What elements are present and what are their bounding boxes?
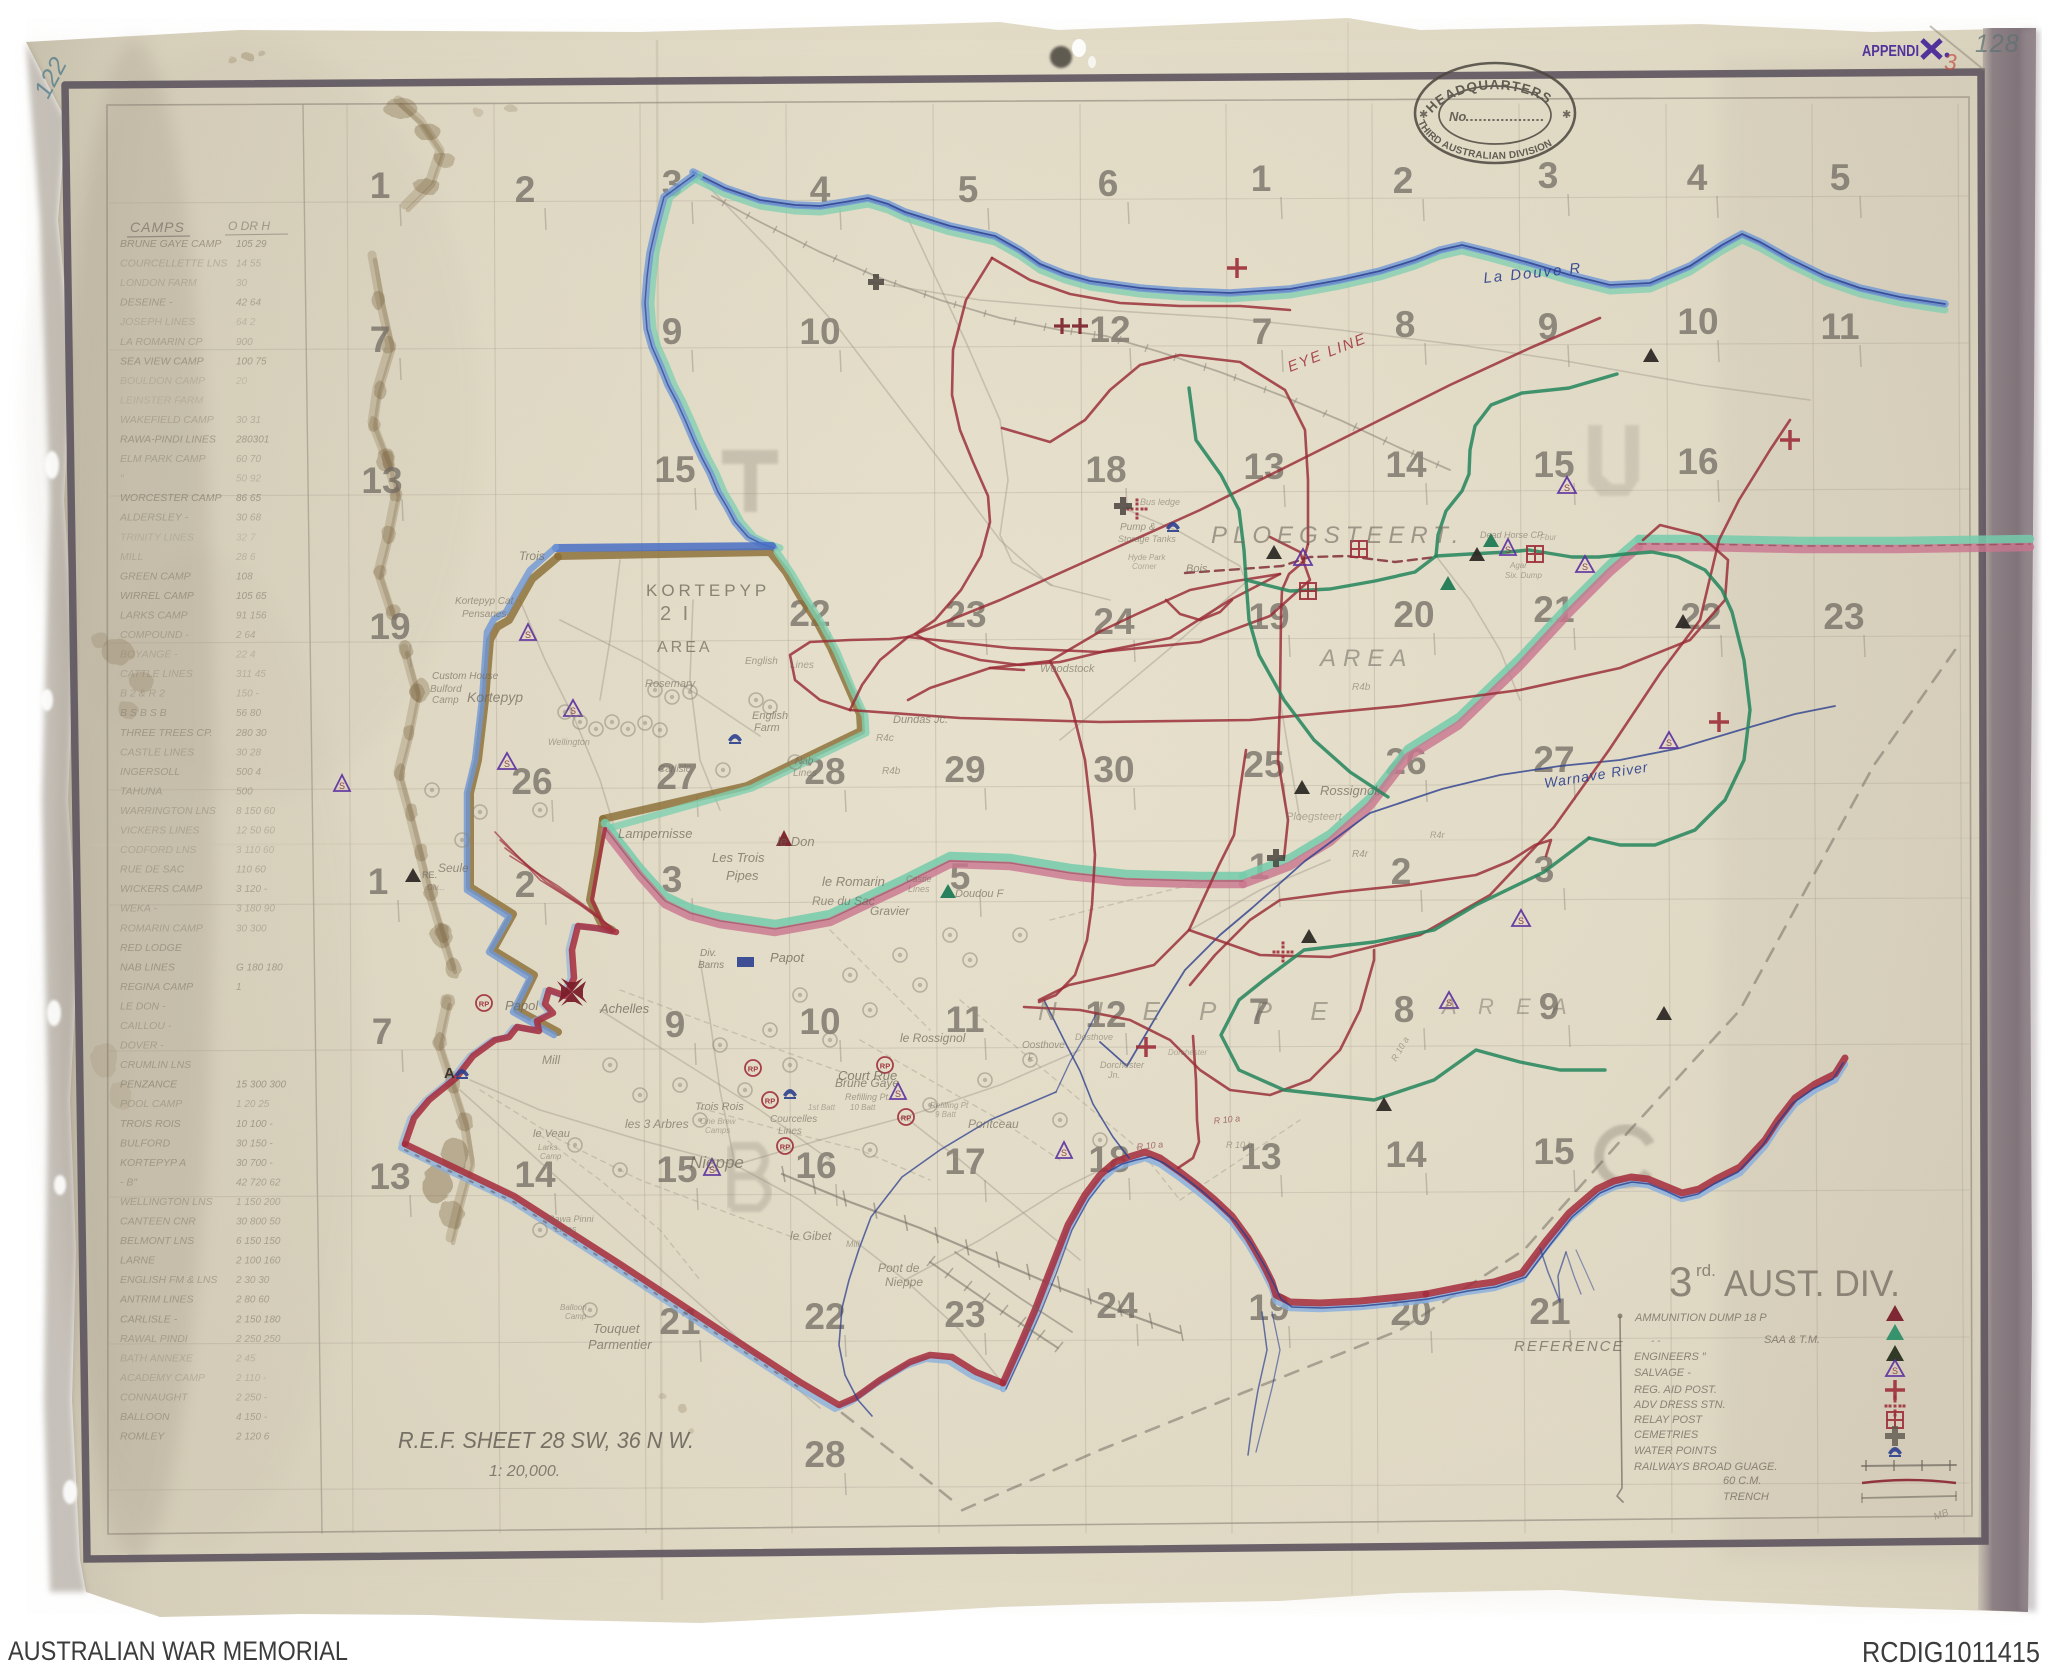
svg-text:1: 1 (236, 982, 242, 993)
svg-text:BALLOON: BALLOON (120, 1411, 170, 1423)
svg-text:JOSEPH LINES: JOSEPH LINES (119, 316, 195, 328)
svg-text:91 156: 91 156 (236, 610, 267, 621)
svg-text:21: 21 (1529, 1291, 1570, 1332)
svg-text:3: 3 (1534, 849, 1555, 890)
svg-text:BELMONT LNS: BELMONT LNS (120, 1235, 194, 1247)
svg-text:S: S (1061, 1148, 1067, 1158)
svg-text:14: 14 (1385, 1134, 1427, 1175)
svg-text:Larks: Larks (538, 1143, 558, 1152)
svg-text:10 100 -: 10 100 - (236, 1119, 273, 1130)
svg-text:LARKS CAMP: LARKS CAMP (120, 609, 188, 621)
svg-text:30 68: 30 68 (236, 513, 261, 524)
svg-text:Papot: Papot (770, 950, 805, 965)
svg-text:Papol: Papol (505, 998, 539, 1013)
svg-text:8: 8 (1394, 989, 1415, 1030)
svg-text:1 20 25: 1 20 25 (236, 1099, 270, 1110)
svg-text:9 Batt: 9 Batt (935, 1110, 957, 1119)
svg-text:RAWAL PINDI: RAWAL PINDI (120, 1333, 188, 1345)
svg-text:TAHUNA: TAHUNA (120, 785, 162, 797)
svg-text:280301: 280301 (235, 435, 269, 446)
svg-text:WATER POINTS: WATER POINTS (1634, 1445, 1717, 1457)
svg-text:RAWA-PINDI LINES: RAWA-PINDI LINES (120, 434, 216, 446)
svg-text:WORCESTER CAMP: WORCESTER CAMP (120, 492, 222, 504)
svg-text:Six. Dump: Six. Dump (1505, 571, 1542, 580)
svg-text:13: 13 (369, 1156, 410, 1197)
svg-text:30 800 50: 30 800 50 (236, 1217, 281, 1228)
svg-text:le Veau: le Veau (533, 1128, 570, 1140)
svg-text:9: 9 (662, 311, 683, 352)
svg-text:2 110 -: 2 110 - (235, 1373, 267, 1384)
svg-text:ANTRIM LINES: ANTRIM LINES (119, 1294, 194, 1306)
svg-text:311 45: 311 45 (236, 669, 266, 680)
svg-text:PENZANCE: PENZANCE (120, 1079, 178, 1091)
svg-text:10: 10 (1677, 301, 1718, 342)
svg-text:CASTLE LINES: CASTLE LINES (120, 746, 194, 758)
svg-text:Hyde Park: Hyde Park (1128, 553, 1166, 562)
svg-text:150 -: 150 - (236, 689, 259, 700)
svg-text:S: S (1666, 738, 1672, 748)
svg-text:1: 20,000.: 1: 20,000. (489, 1463, 560, 1480)
svg-text:S: S (1505, 545, 1511, 555)
svg-text:128: 128 (1975, 30, 2020, 58)
svg-text:KORTEPYP: KORTEPYP (646, 581, 770, 600)
svg-text:60 70: 60 70 (236, 454, 261, 465)
svg-text:3 120 -: 3 120 - (236, 884, 268, 895)
svg-text:2: 2 (1393, 160, 1414, 201)
svg-text:ENGLISH FM & LNS: ENGLISH FM & LNS (120, 1274, 217, 1286)
svg-text:Lines: Lines (908, 884, 930, 894)
svg-text:RP: RP (748, 1065, 758, 1074)
svg-text:RED LODGE: RED LODGE (120, 942, 183, 954)
svg-text:Mill: Mill (846, 1239, 860, 1249)
svg-text:A: A (444, 1065, 455, 1082)
svg-text:100 75: 100 75 (236, 356, 267, 367)
svg-text:30 300: 30 300 (236, 923, 267, 934)
svg-text:105 65: 105 65 (236, 591, 267, 602)
svg-text:Lines: Lines (555, 1224, 577, 1234)
svg-text:ADV DRESS STN.: ADV DRESS STN. (1633, 1399, 1726, 1411)
svg-text:les 3 Arbres: les 3 Arbres (625, 1117, 689, 1131)
svg-text:Lines: Lines (778, 1126, 802, 1137)
svg-text:Kortepyp Cat: Kortepyp Cat (455, 596, 515, 607)
svg-text:ACADEMY CAMP: ACADEMY CAMP (119, 1372, 205, 1384)
svg-text:5: 5 (1830, 157, 1851, 198)
svg-text:S: S (1582, 562, 1588, 572)
svg-text:Div...: Div... (427, 883, 445, 892)
svg-text:S: S (1564, 483, 1570, 493)
svg-text:AREA: AREA (657, 639, 713, 656)
svg-text:7: 7 (372, 1011, 393, 1052)
svg-text:15: 15 (1533, 1131, 1574, 1172)
svg-text:Nieppe: Nieppe (885, 1275, 923, 1289)
svg-text:2 30 30: 2 30 30 (235, 1275, 270, 1286)
svg-text:CANTEEN CNR: CANTEEN CNR (120, 1216, 196, 1228)
svg-text:3 110 60: 3 110 60 (236, 845, 275, 856)
svg-text:F: F (1028, 1052, 1034, 1062)
svg-text:Jn.: Jn. (1107, 1070, 1120, 1080)
svg-text:12: 12 (1089, 309, 1130, 350)
svg-text:A R E A: A R E A (1440, 994, 1575, 1019)
svg-text:R4c: R4c (876, 733, 894, 744)
svg-text:1st Batt: 1st Batt (808, 1103, 836, 1112)
svg-text:RP: RP (901, 1114, 911, 1123)
svg-text:RE.: RE. (422, 870, 437, 880)
svg-text:WARRINGTON LNS: WARRINGTON LNS (120, 805, 216, 817)
svg-text:15 300 300: 15 300 300 (236, 1080, 286, 1091)
svg-text:MILL: MILL (120, 551, 144, 563)
svg-text:30 31: 30 31 (236, 415, 261, 426)
svg-text:WELLINGTON LNS: WELLINGTON LNS (120, 1196, 213, 1208)
svg-text:Dorchester: Dorchester (1100, 1060, 1145, 1070)
svg-text:COURCELLETTE LNS: COURCELLETTE LNS (120, 258, 227, 270)
svg-text:S: S (1892, 1366, 1898, 1376)
svg-text:30 700 -: 30 700 - (236, 1158, 273, 1169)
svg-text:RP: RP (765, 1097, 775, 1106)
svg-text:S: S (339, 781, 345, 791)
svg-text:Mill: Mill (542, 1053, 560, 1067)
svg-text:English: English (752, 710, 788, 722)
svg-text:23: 23 (1823, 596, 1864, 637)
svg-text:Wellington: Wellington (548, 737, 590, 747)
svg-text:DOVER -: DOVER - (120, 1040, 164, 1052)
svg-text:Trois Rois: Trois Rois (695, 1101, 744, 1113)
svg-text:30: 30 (236, 278, 248, 289)
svg-text:2 120 6: 2 120 6 (235, 1432, 270, 1443)
svg-text:1 150 200: 1 150 200 (236, 1197, 281, 1208)
svg-text:Refilling Pt.: Refilling Pt. (845, 1092, 891, 1102)
svg-text:G 180 180: G 180 180 (236, 962, 283, 973)
svg-text:4 150 -: 4 150 - (236, 1412, 268, 1423)
svg-text:500: 500 (236, 786, 253, 797)
svg-text:WICKERS CAMP: WICKERS CAMP (120, 883, 202, 895)
svg-text:APPENDI: APPENDI (1862, 43, 1919, 60)
svg-text:R 10 b: R 10 b (1226, 1140, 1253, 1150)
svg-text:3: 3 (1538, 155, 1559, 196)
svg-text:✱: ✱ (1419, 109, 1428, 121)
svg-text:19: 19 (369, 606, 410, 647)
svg-text:REGINA CAMP: REGINA CAMP (120, 981, 193, 993)
svg-text:R4r: R4r (1352, 849, 1369, 860)
svg-text:Rossignol.: Rossignol. (1320, 783, 1381, 798)
svg-text:CODFORD LNS: CODFORD LNS (120, 844, 196, 856)
svg-text:Bus ledge: Bus ledge (1140, 497, 1180, 507)
svg-text:2 I: 2 I (660, 603, 691, 625)
svg-text:LONDON FARM: LONDON FARM (120, 277, 197, 289)
svg-text:30 28: 30 28 (236, 747, 261, 758)
svg-text:ELM PARK CAMP: ELM PARK CAMP (120, 453, 206, 465)
svg-text:10: 10 (799, 311, 840, 352)
svg-text:THREE TREES CP.: THREE TREES CP. (120, 727, 213, 739)
svg-text:RP: RP (780, 1143, 790, 1152)
svg-text:Nieppe: Nieppe (690, 1153, 744, 1172)
svg-text:42 64: 42 64 (236, 298, 261, 309)
svg-text:1: 1 (368, 861, 389, 902)
svg-text:Pontceau: Pontceau (968, 1117, 1019, 1131)
svg-text:AUSTRALIAN WAR MEMORIAL: AUSTRALIAN WAR MEMORIAL (8, 1636, 348, 1666)
svg-text:SEA VIEW CAMP: SEA VIEW CAMP (120, 355, 204, 367)
svg-text:O DR H: O DR H (228, 219, 270, 233)
svg-text:- -: - - (1651, 1336, 1661, 1347)
svg-text:Lines: Lines (790, 660, 814, 671)
svg-text:10: 10 (799, 1001, 840, 1042)
svg-text:Woodstock: Woodstock (1040, 663, 1095, 675)
svg-text:64 2: 64 2 (236, 317, 256, 328)
svg-text:2 64: 2 64 (235, 630, 256, 641)
svg-text:NAB LINES: NAB LINES (120, 961, 175, 973)
svg-text:TROIS ROIS: TROIS ROIS (120, 1118, 181, 1130)
svg-text:18: 18 (1085, 449, 1126, 490)
svg-text:ALDERSLEY -: ALDERSLEY - (119, 512, 189, 524)
svg-text:RCDIG1011415: RCDIG1011415 (1862, 1637, 2040, 1669)
svg-text:26: 26 (511, 761, 552, 802)
svg-text:CATTLE LINES: CATTLE LINES (120, 668, 193, 680)
svg-text:Dorchester: Dorchester (1168, 1048, 1207, 1057)
svg-text:28: 28 (804, 1434, 845, 1475)
svg-text:R.E.F. SHEET 28 SW, 36 N W.: R.E.F. SHEET 28 SW, 36 N W. (398, 1427, 694, 1453)
svg-text:3: 3 (1669, 1258, 1692, 1305)
svg-text:BULFORD: BULFORD (120, 1137, 171, 1149)
svg-text:23: 23 (944, 1294, 985, 1335)
svg-text:BOYANGE -: BOYANGE - (120, 649, 178, 661)
svg-text:280 30: 280 30 (235, 728, 267, 739)
svg-text:30: 30 (1093, 749, 1134, 790)
svg-text:Barns: Barns (698, 960, 724, 971)
svg-text:Bois: Bois (1186, 563, 1208, 575)
svg-text:LEINSTER FARM: LEINSTER FARM (120, 394, 203, 406)
svg-text:SALVAGE -: SALVAGE - (1634, 1367, 1691, 1379)
svg-text:Div.: Div. (700, 948, 716, 959)
svg-text:BRUNE GAYE CAMP: BRUNE GAYE CAMP (120, 238, 221, 250)
svg-text:REFERENCE: REFERENCE (1514, 1338, 1625, 1355)
svg-text:4: 4 (1687, 157, 1708, 198)
svg-text:CAMPS: CAMPS (130, 219, 185, 235)
svg-text:LE DON -: LE DON - (120, 1000, 166, 1012)
svg-text:105 29: 105 29 (236, 239, 267, 250)
svg-text:12 50 60: 12 50 60 (236, 826, 275, 837)
svg-text:60 C.M.: 60 C.M. (1723, 1475, 1762, 1487)
svg-text:Dundas Jc.: Dundas Jc. (893, 714, 948, 726)
svg-text:ROMARIN CAMP: ROMARIN CAMP (120, 922, 203, 934)
svg-text:86 65: 86 65 (236, 493, 261, 504)
svg-text:Lampernisse: Lampernisse (618, 826, 692, 841)
svg-text:BOULDON CAMP: BOULDON CAMP (120, 375, 205, 387)
svg-text:16: 16 (795, 1145, 836, 1186)
svg-text:Trois: Trois (519, 549, 545, 563)
svg-text:7: 7 (1252, 311, 1273, 352)
svg-text:LARNE: LARNE (120, 1255, 156, 1267)
svg-text:CEMETRIES: CEMETRIES (1634, 1429, 1699, 1441)
svg-text:29: 29 (944, 749, 985, 790)
svg-text:1: 1 (1251, 158, 1272, 199)
svg-text:Rosemary: Rosemary (645, 678, 697, 690)
svg-text:2 45: 2 45 (235, 1353, 256, 1364)
svg-text:56 80: 56 80 (236, 708, 261, 719)
svg-text:AUST. DIV.: AUST. DIV. (1724, 1263, 1900, 1304)
svg-text:13: 13 (1243, 446, 1284, 487)
svg-text:INGERSOLL: INGERSOLL (120, 766, 180, 778)
svg-text:2 250 250: 2 250 250 (235, 1334, 281, 1345)
svg-text:S: S (525, 630, 531, 640)
svg-text:Nab: Nab (795, 756, 814, 767)
svg-text:7: 7 (370, 319, 391, 360)
svg-text:900: 900 (236, 337, 253, 348)
svg-text:WIRREL CAMP: WIRREL CAMP (120, 590, 194, 602)
svg-text:Agar: Agar (1509, 561, 1527, 570)
svg-text:le Romarin: le Romarin (822, 874, 885, 889)
svg-text:8 150 60: 8 150 60 (236, 806, 275, 817)
svg-text:20: 20 (1393, 594, 1434, 635)
svg-text:32 7: 32 7 (236, 532, 256, 543)
svg-text:RP: RP (479, 1000, 489, 1009)
svg-text:Carlisle: Carlisle (658, 764, 692, 775)
svg-text:13: 13 (361, 460, 402, 501)
svg-text:Ploegsteert: Ploegsteert (1286, 811, 1343, 823)
svg-text:24: 24 (1093, 601, 1135, 642)
svg-text:3: 3 (1944, 49, 1957, 75)
svg-text:Camps: Camps (705, 1126, 730, 1135)
svg-text:Refilling Pt: Refilling Pt (930, 1101, 969, 1110)
svg-text:Custom House: Custom House (432, 671, 499, 682)
svg-text:CONNAUGHT: CONNAUGHT (120, 1391, 189, 1403)
svg-text:S: S (895, 1089, 901, 1099)
svg-text:RELAY POST: RELAY POST (1634, 1414, 1703, 1426)
svg-text:Dosthove: Dosthove (1075, 1032, 1113, 1042)
svg-text:SAA & T.M.: SAA & T.M. (1764, 1334, 1820, 1346)
svg-text:2 150 180: 2 150 180 (235, 1314, 281, 1325)
svg-text:✱: ✱ (1562, 109, 1571, 121)
svg-text:B 2 & R 2: B 2 & R 2 (120, 688, 165, 700)
svg-text:Pipes: Pipes (726, 868, 759, 883)
svg-text:Kortepyp: Kortepyp (467, 689, 523, 705)
svg-text:RUE DE SAC: RUE DE SAC (120, 864, 185, 876)
svg-text:Dead Horse CP: Dead Horse CP (1480, 530, 1543, 540)
svg-text:5: 5 (958, 169, 979, 210)
svg-text:Storage Tanks: Storage Tanks (1118, 534, 1176, 544)
svg-text:110 60: 110 60 (236, 865, 266, 876)
svg-text:WAKEFIELD CAMP: WAKEFIELD CAMP (120, 414, 214, 426)
svg-text:16: 16 (1677, 441, 1718, 482)
svg-text:DESEINE -: DESEINE - (120, 297, 173, 309)
svg-text:10 Batt: 10 Batt (850, 1103, 876, 1112)
svg-text:22 4: 22 4 (235, 650, 256, 661)
svg-text:LA ROMARIN CP: LA ROMARIN CP (120, 336, 202, 348)
svg-text:R4r: R4r (1430, 830, 1446, 840)
svg-text:One Brew: One Brew (700, 1117, 737, 1126)
svg-text:Fbur: Fbur (1540, 533, 1557, 542)
svg-text:TRINITY LINES: TRINITY LINES (120, 531, 194, 543)
svg-text:R4b: R4b (882, 766, 901, 777)
svg-text:rd.: rd. (1696, 1261, 1716, 1280)
svg-text:Castle: Castle (906, 874, 932, 884)
svg-text:le Gibet: le Gibet (790, 1229, 832, 1243)
svg-text:27: 27 (656, 756, 697, 797)
svg-text:3 180 90: 3 180 90 (236, 904, 275, 915)
svg-text:Corner: Corner (1132, 562, 1157, 571)
svg-text:Camp: Camp (565, 1312, 587, 1321)
svg-text:BATH ANNEXE: BATH ANNEXE (120, 1352, 194, 1364)
svg-text:500 4: 500 4 (236, 767, 261, 778)
svg-text:COMPOUND -: COMPOUND - (120, 629, 189, 641)
svg-text:Les Trois: Les Trois (712, 850, 765, 865)
svg-text:11: 11 (1820, 306, 1859, 347)
svg-text:REG. AID POST.: REG. AID POST. (1634, 1384, 1717, 1396)
svg-text:English: English (745, 656, 778, 667)
svg-text:15: 15 (654, 449, 695, 490)
svg-text:Balloon: Balloon (560, 1303, 587, 1312)
svg-text:2 80 60: 2 80 60 (235, 1295, 270, 1306)
svg-text:le Rossignol: le Rossignol (900, 1031, 966, 1045)
svg-text:ENGINEERS ″: ENGINEERS ″ (1634, 1351, 1707, 1363)
svg-text:Bulford: Bulford (430, 684, 462, 695)
svg-text:Camp: Camp (432, 695, 459, 706)
svg-text:POOL CAMP: POOL CAMP (120, 1098, 182, 1110)
svg-text:CAILLOU -: CAILLOU - (120, 1020, 172, 1032)
svg-text:Camp: Camp (540, 1152, 562, 1161)
svg-text:Parmentier: Parmentier (588, 1337, 652, 1352)
svg-text:6 150 150: 6 150 150 (236, 1236, 281, 1247)
svg-text:9: 9 (665, 1004, 686, 1045)
svg-text:- B″: - B″ (120, 1176, 138, 1188)
svg-text:1: 1 (370, 165, 391, 206)
svg-text:14 55: 14 55 (236, 259, 261, 270)
svg-text:VICKERS LINES: VICKERS LINES (120, 825, 199, 837)
svg-text:Seule: Seule (438, 861, 469, 875)
svg-text:42 720 62: 42 720 62 (236, 1177, 281, 1188)
svg-text:108: 108 (236, 571, 253, 582)
svg-text:Pump &: Pump & (1120, 522, 1156, 533)
svg-text:KORTEPYP A: KORTEPYP A (120, 1157, 186, 1169)
svg-text:Achelles: Achelles (599, 1001, 650, 1016)
svg-text:Lines: Lines (793, 768, 817, 779)
svg-text:30 150 -: 30 150 - (236, 1138, 273, 1149)
svg-text:AREA: AREA (1318, 645, 1413, 672)
svg-text:CARLISLE -: CARLISLE - (120, 1313, 178, 1325)
svg-text:WEKA -: WEKA - (120, 903, 157, 915)
svg-text:No: No (1449, 109, 1466, 124)
svg-text:Oosthove: Oosthove (1022, 1040, 1065, 1051)
svg-text:2 100 160: 2 100 160 (235, 1256, 281, 1267)
svg-text:Pensanes: Pensanes (462, 609, 506, 620)
svg-text:28 6: 28 6 (235, 552, 256, 563)
svg-text:RAILWAYS BROAD GUAGE.: RAILWAYS BROAD GUAGE. (1634, 1461, 1777, 1473)
svg-text:Pont de: Pont de (878, 1261, 920, 1275)
svg-text:Touquet: Touquet (593, 1321, 641, 1336)
svg-text:Farm: Farm (754, 722, 780, 734)
svg-text:AMMUNITION DUMP 18 P: AMMUNITION DUMP 18 P (1634, 1312, 1767, 1324)
svg-text:TRENCH: TRENCH (1723, 1491, 1769, 1503)
svg-text:Court Rue: Court Rue (838, 1068, 897, 1083)
svg-text:50 92: 50 92 (236, 474, 261, 485)
svg-text:2: 2 (515, 169, 536, 210)
svg-text:Gravier: Gravier (870, 904, 910, 918)
svg-text:S: S (504, 759, 510, 769)
svg-text:ROMLEY: ROMLEY (120, 1431, 165, 1443)
svg-text:Doudou F: Doudou F (955, 888, 1005, 900)
svg-text:S: S (1300, 555, 1306, 565)
svg-text:Rawa Pinni: Rawa Pinni (548, 1214, 595, 1224)
svg-text:PLOEGSTEERT.: PLOEGSTEERT. (1211, 522, 1464, 549)
svg-text:2 250 -: 2 250 - (235, 1392, 268, 1403)
svg-text:le Don: le Don (777, 834, 815, 849)
svg-text:Courcelles: Courcelles (770, 1114, 817, 1125)
svg-text:R4b: R4b (1352, 682, 1371, 693)
svg-text:GREEN CAMP: GREEN CAMP (120, 570, 191, 582)
svg-text:20: 20 (235, 376, 248, 387)
svg-text:Rue du Sac: Rue du Sac (812, 894, 875, 908)
svg-text:CRUMLIN LNS: CRUMLIN LNS (120, 1059, 191, 1071)
svg-text:N I E P P E: N I E P P E (1038, 996, 1344, 1026)
svg-text:B S B S B: B S B S B (120, 707, 167, 719)
